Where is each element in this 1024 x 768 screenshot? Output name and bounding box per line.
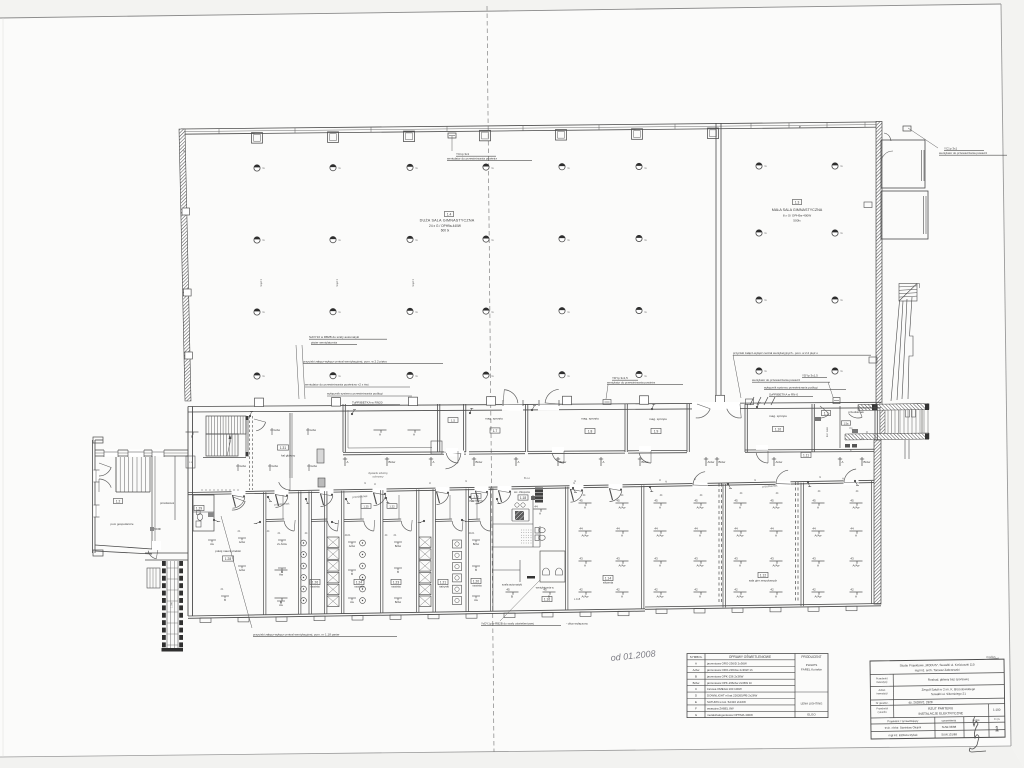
- svg-text:G: G: [568, 310, 570, 314]
- svg-text:A/Aw: A/Aw: [737, 533, 745, 537]
- svg-text:rząd 1: rząd 1: [411, 279, 415, 287]
- svg-text:szafa automatyki: szafa automatyki: [502, 583, 523, 587]
- svg-text:42: 42: [694, 588, 698, 592]
- svg-text:przyciski załącz-wyłącz centra: przyciski załącz-wyłącz central wentylac…: [253, 633, 340, 637]
- svg-text:B/Aw: B/Aw: [560, 460, 568, 464]
- svg-text:1.9: 1.9: [654, 429, 659, 433]
- svg-text:45: 45: [770, 499, 774, 503]
- svg-text:G: G: [263, 374, 265, 378]
- svg-text:A/Aw: A/Aw: [697, 505, 705, 509]
- svg-text:B/Aw: B/Aw: [864, 460, 872, 464]
- svg-text:pom gospodarcze: pom gospodarcze: [111, 522, 134, 526]
- svg-text:∨: ∨: [659, 478, 661, 482]
- svg-text:TuPRIBETKA w RN20: TuPRIBETKA w RN20: [352, 401, 383, 405]
- svg-text:B: B: [351, 572, 353, 576]
- svg-text:A/Aw: A/Aw: [773, 505, 781, 509]
- svg-text:1.29: 1.29: [196, 506, 202, 510]
- svg-text:A/Aw: A/Aw: [737, 594, 745, 598]
- svg-text:G: G: [645, 166, 647, 170]
- svg-text:SUW-33/88: SUW-33/88: [942, 725, 957, 729]
- svg-text:42: 42: [654, 588, 658, 592]
- svg-text:2x A/Aw: 2x A/Aw: [277, 542, 287, 546]
- svg-text:PHILIPS: PHILIPS: [806, 663, 818, 667]
- svg-text:wc. chłopców: wc. chłopców: [514, 490, 530, 494]
- svg-text:jarzeniowa ORO-236/Aw 2x36W: jarzeniowa ORO-236/Aw 2x36W 1h: [706, 668, 753, 672]
- svg-text:A/Aw: A/Aw: [815, 594, 823, 598]
- svg-text:1.2: 1.2: [116, 499, 121, 503]
- svg-text:G: G: [645, 310, 647, 314]
- svg-text:RZUT PARTERU: RZUT PARTERU: [928, 706, 954, 710]
- svg-text:jarzeniowa ORO-236/D 2x36W: jarzeniowa ORO-236/D 2x36W: [706, 661, 747, 665]
- svg-text:1.1: 1.1: [824, 411, 829, 415]
- svg-text:wentylator do przewietrzania p: wentylator do przewietrzania powietrz: [752, 378, 801, 382]
- svg-text:G: G: [645, 238, 647, 242]
- svg-text:siłownia: siłownia: [603, 581, 614, 585]
- svg-text:LENA LIGHTING: LENA LIGHTING: [801, 702, 824, 706]
- svg-text:mag. sprzętu: mag. sprzętu: [649, 417, 667, 421]
- svg-text:wentylator do przewietrzania p: wentylator do przewietrzania powietrz: [607, 381, 656, 385]
- svg-text:45: 45: [734, 499, 738, 503]
- svg-text:A/Aw: A/Aw: [853, 563, 861, 567]
- svg-text:- ulicę wyłączony: - ulicę wyłączony: [566, 622, 588, 626]
- svg-text:G: G: [841, 164, 843, 168]
- svg-text:rząd 1: rząd 1: [335, 279, 339, 287]
- svg-text:mag. sprzętu: mag. sprzętu: [769, 414, 787, 418]
- svg-text:44: 44: [654, 527, 658, 531]
- svg-text:hal główny: hal główny: [281, 454, 296, 458]
- svg-text:1: 1: [995, 724, 999, 733]
- svg-text:A: A: [775, 533, 777, 537]
- svg-text:1.11: 1.11: [803, 453, 809, 457]
- svg-text:44: 44: [579, 527, 583, 531]
- svg-text:45: 45: [850, 499, 854, 503]
- svg-text:C: C: [695, 687, 697, 691]
- svg-text:43: 43: [734, 557, 738, 561]
- svg-text:44: 44: [534, 505, 538, 509]
- svg-text:SvDY10 w RB2B do szafy automat: SvDY10 w RB2B do szafy automatyki: [309, 335, 359, 339]
- svg-text:B: B: [191, 434, 193, 438]
- svg-text:A: A: [433, 460, 435, 464]
- svg-text:A/Aw: A/Aw: [582, 594, 590, 598]
- svg-text:43: 43: [654, 557, 658, 561]
- svg-text:Aw: Aw: [474, 598, 478, 602]
- svg-text:F: F: [695, 707, 697, 711]
- svg-text:A/Aw: A/Aw: [693, 668, 701, 672]
- svg-text:45: 45: [616, 499, 620, 503]
- svg-text:A: A: [817, 563, 819, 567]
- svg-text:Nr geodez.: Nr geodez.: [876, 701, 889, 705]
- svg-text:43: 43: [812, 557, 816, 561]
- svg-text:przyciski załącz-wyłącz centra: przyciski załącz-wyłącz central wentylac…: [733, 351, 818, 355]
- svg-text:44: 44: [812, 527, 816, 531]
- svg-text:1.5: 1.5: [451, 418, 455, 422]
- svg-text:szatnia: szatnia: [391, 585, 401, 589]
- svg-text:G: G: [645, 374, 647, 378]
- svg-text:1.18: 1.18: [520, 496, 526, 500]
- svg-text:A: A: [379, 432, 381, 436]
- svg-text:SUW.131/88: SUW.131/88: [941, 732, 957, 736]
- svg-text:A: A: [699, 533, 701, 537]
- svg-text:pokój nauczycielski: pokój nauczycielski: [215, 549, 241, 553]
- svg-text:1.8: 1.8: [588, 429, 593, 433]
- svg-text:Projektant / Sprawdzający: Projektant / Sprawdzający: [887, 719, 919, 723]
- svg-text:500lx: 500lx: [793, 219, 801, 223]
- svg-text:45: 45: [812, 499, 816, 503]
- svg-text:uprawnienia: uprawnienia: [942, 718, 957, 722]
- svg-text:45: 45: [543, 588, 547, 592]
- svg-text:45: 45: [694, 499, 698, 503]
- svg-text:44: 44: [616, 527, 620, 531]
- svg-text:A: A: [775, 594, 777, 598]
- svg-text:A/Aw: A/Aw: [582, 533, 590, 537]
- svg-text:44: 44: [770, 527, 774, 531]
- svg-text:1 5%: 1 5%: [171, 601, 174, 607]
- svg-text:600 lx: 600 lx: [441, 229, 450, 233]
- svg-text:43: 43: [694, 557, 698, 561]
- svg-text:G: G: [416, 374, 418, 378]
- svg-text:A: A: [659, 505, 661, 509]
- svg-text:G: G: [765, 231, 767, 235]
- svg-text:8 x G/ OPH9a-400W: 8 x G/ OPH9a-400W: [783, 214, 811, 218]
- svg-text:G: G: [492, 238, 494, 242]
- svg-text:B/Aw: B/Aw: [693, 681, 701, 685]
- svg-text:G: G: [841, 231, 843, 235]
- svg-text:A/Aw: A/Aw: [239, 540, 245, 544]
- svg-text:A: A: [621, 594, 623, 598]
- svg-text:A/Aw: A/Aw: [239, 568, 245, 572]
- svg-text:ochronny: ochronny: [372, 475, 384, 479]
- svg-text:45: 45: [506, 588, 510, 592]
- svg-text:A: A: [413, 432, 415, 436]
- svg-text:A/Aw: A/Aw: [776, 460, 784, 464]
- svg-text:jarzeniowa OPK-236 2x36W: jarzeniowa OPK-236 2x36W: [706, 674, 744, 678]
- svg-text:43: 43: [579, 557, 583, 561]
- svg-text:YDYp 3x1,5: YDYp 3x1,5: [612, 376, 628, 380]
- svg-text:∨: ∨: [573, 481, 575, 485]
- svg-text:Suwałki ul. Sikorskiego 21: Suwałki ul. Sikorskiego 21: [931, 692, 966, 696]
- svg-text:D: D: [695, 694, 697, 698]
- svg-text:45: 45: [654, 499, 658, 503]
- svg-text:YDYp 3x1,5: YDYp 3x1,5: [802, 374, 818, 378]
- svg-text:G: G: [339, 238, 341, 242]
- svg-text:B/Aw: B/Aw: [719, 460, 727, 464]
- svg-text:A/Aw: A/Aw: [310, 428, 316, 432]
- svg-text:∨: ∨: [819, 475, 821, 479]
- svg-text:A/Aw: A/Aw: [657, 594, 665, 598]
- svg-text:G: G: [841, 298, 843, 302]
- svg-text:B: B: [695, 674, 697, 678]
- svg-text:metalohalogenkowa OPTIMA 400W: metalohalogenkowa OPTIMA 400W: [707, 713, 753, 717]
- svg-text:A: A: [347, 460, 349, 464]
- svg-text:44: 44: [734, 527, 738, 531]
- svg-text:G: G: [841, 369, 843, 373]
- svg-text:YvDY1p w RB2B do szafy oświetl: YvDY1p w RB2B do szafy oświetleniowej: [481, 622, 534, 626]
- svg-text:wentylator do przewietrzania p: wentylator do przewietrzania powietrz: [939, 151, 988, 155]
- svg-text:YC1p 3x1: YC1p 3x1: [456, 152, 470, 156]
- svg-text:B/Aw: B/Aw: [389, 460, 397, 464]
- svg-text:1.7: 1.7: [493, 429, 498, 433]
- svg-text:42: 42: [616, 588, 620, 592]
- svg-text:wentylator do przewietrzania p: wentylator do przewietrzania powietrza +…: [305, 383, 369, 387]
- svg-text:jarzeniowa OPK-236/Aw 2x36W: jarzeniowa OPK-236/Aw 2x36W 1h: [706, 681, 752, 685]
- svg-text:inwestycji: inwestycji: [876, 680, 888, 684]
- svg-text:mag. sprzętu: mag. sprzętu: [581, 417, 599, 421]
- svg-text:∨: ∨: [465, 479, 467, 483]
- svg-text:inwestycji: inwestycji: [876, 691, 888, 695]
- svg-text:żarowa OMEGA 100 100W: żarowa OMEGA 100 100W: [707, 687, 742, 691]
- svg-text:OPRAWY OŚWIETLENIOWE: OPRAWY OŚWIETLENIOWE: [729, 654, 771, 659]
- svg-text:dywanik szkolny: dywanik szkolny: [368, 471, 388, 475]
- svg-text:szatnia: szatnia: [354, 585, 364, 589]
- svg-text:G: G: [263, 238, 265, 242]
- svg-text:DOWNLIGHT el.kat 226265/PB 2x: DOWNLIGHT el.kat 226265/PB 2x26W: [707, 694, 758, 698]
- svg-text:G: G: [416, 166, 418, 170]
- svg-text:mgl inż. Elżbieta Rybak: mgl inż. Elżbieta Rybak: [888, 733, 918, 737]
- svg-text:1.31: 1.31: [280, 446, 286, 450]
- svg-text:1.25: 1.25: [363, 504, 369, 508]
- svg-text:1.28: 1.28: [225, 557, 231, 561]
- svg-text:∨: ∨: [665, 480, 667, 484]
- svg-text:Aw: Aw: [279, 603, 283, 607]
- svg-text:A/Aw: A/Aw: [311, 464, 317, 468]
- svg-text:42: 42: [850, 588, 854, 592]
- svg-text:A: A: [855, 594, 857, 598]
- svg-text:A/Aw: A/Aw: [708, 460, 716, 464]
- svg-text:szatnia: szatnia: [472, 584, 482, 588]
- svg-text:B/Aw: B/Aw: [395, 544, 401, 548]
- svg-text:sala gier zespołowych: sala gier zespołowych: [749, 579, 778, 583]
- svg-text:∨: ∨: [364, 481, 366, 485]
- svg-text:A: A: [817, 505, 819, 509]
- svg-text:1:100: 1:100: [993, 708, 1001, 712]
- svg-text:43: 43: [850, 557, 854, 561]
- svg-text:A: A: [842, 460, 844, 464]
- svg-text:42: 42: [579, 588, 583, 592]
- svg-text:G: G: [492, 374, 494, 378]
- svg-text:42: 42: [734, 588, 738, 592]
- svg-text:A: A: [695, 661, 697, 665]
- svg-text:45: 45: [579, 499, 583, 503]
- svg-text:B: B: [397, 570, 399, 574]
- svg-text:rząd 1: rząd 1: [259, 279, 263, 287]
- svg-text:przedsionek: przedsionek: [848, 410, 864, 414]
- svg-text:Rozbud. główny baz sportowej: Rozbud. główny baz sportowej: [928, 677, 969, 682]
- svg-text:42: 42: [770, 588, 774, 592]
- svg-text:dz. 26280/2, 2828: dz. 26280/2, 2828: [909, 700, 933, 704]
- svg-text:G: G: [339, 310, 341, 314]
- svg-text:A/Aw: A/Aw: [272, 464, 278, 468]
- svg-text:wyłącznik systemu przewietrzan: wyłącznik systemu przewietrzania podłogi: [327, 392, 383, 396]
- svg-text:A: A: [584, 505, 586, 509]
- svg-text:A: A: [659, 563, 661, 567]
- svg-text:pięter wentylatornia: pięter wentylatornia: [311, 341, 337, 345]
- svg-text:A/Aw: A/Aw: [619, 505, 627, 509]
- svg-text:42: 42: [812, 588, 816, 592]
- svg-text:A/Aw: A/Aw: [349, 544, 355, 548]
- svg-text:43: 43: [616, 557, 620, 561]
- svg-text:YC1p 3x1: YC1p 3x1: [944, 147, 958, 151]
- svg-text:przyciski załącz-wyłącz centra: przyciski załącz-wyłącz central wentylac…: [303, 360, 387, 364]
- svg-text:B o.o: B o.o: [524, 477, 530, 480]
- svg-text:G: G: [492, 166, 494, 170]
- svg-text:B: B: [548, 594, 550, 598]
- svg-text:44: 44: [694, 527, 698, 531]
- svg-text:A/Aw: A/Aw: [815, 533, 823, 537]
- svg-text:1.12: 1.12: [760, 573, 766, 577]
- svg-text:B: B: [475, 568, 477, 572]
- svg-text:ELGO: ELGO: [807, 713, 816, 717]
- svg-text:SATURN w kol. 5A316 2x16W: SATURN w kol. 5A316 2x16W: [707, 700, 746, 704]
- svg-text:PRODUCENT: PRODUCENT: [801, 655, 821, 659]
- svg-text:G: G: [339, 374, 341, 378]
- svg-text:A: A: [855, 533, 857, 537]
- svg-text:PO3Φ: PO3Φ: [153, 527, 162, 531]
- svg-text:kor. wew: kor. wew: [825, 427, 829, 437]
- svg-text:1.4: 1.4: [447, 212, 452, 216]
- svg-text:43: 43: [770, 557, 774, 561]
- svg-text:∨: ∨: [754, 478, 756, 482]
- svg-text:Adres: Adres: [878, 688, 886, 692]
- svg-text:C: C: [866, 430, 868, 434]
- svg-text:∨: ∨: [374, 482, 376, 486]
- svg-text:B/Aw: B/Aw: [476, 460, 484, 464]
- svg-text:G: G: [765, 369, 767, 373]
- svg-text:Aw: Aw: [350, 600, 354, 604]
- svg-text:wyłącznik systemu przewietrzan: wyłącznik systemu przewietrzania podłogi: [764, 386, 818, 390]
- svg-text:A/Aw: A/Aw: [274, 428, 280, 432]
- svg-text:Aw: Aw: [210, 542, 214, 546]
- svg-text:G: G: [416, 310, 418, 314]
- svg-text:A: A: [518, 460, 520, 464]
- svg-text:A/Aw: A/Aw: [853, 505, 861, 509]
- svg-text:INSTALACJE ELEKTRYCZNE: INSTALACJE ELEKTRYCZNE: [918, 711, 963, 716]
- svg-text:×: ×: [183, 149, 185, 153]
- svg-text:A: A: [539, 511, 541, 515]
- svg-text:DUŻA SALA GIMNASTYCZNA: DUŻA SALA GIMNASTYCZNA: [420, 218, 475, 223]
- svg-text:rysunku: rysunku: [878, 710, 888, 714]
- svg-text:C: C: [861, 437, 863, 441]
- svg-text:G: G: [492, 310, 494, 314]
- svg-text:natryski: natryski: [439, 585, 449, 589]
- svg-text:G: G: [416, 238, 418, 242]
- svg-text:B/Aw: B/Aw: [642, 460, 650, 464]
- svg-text:G: G: [765, 298, 767, 302]
- svg-text:G: G: [263, 166, 265, 170]
- svg-text:A/Aw: A/Aw: [619, 563, 627, 567]
- svg-text:1.22: 1.22: [389, 504, 395, 508]
- svg-text:∨: ∨: [429, 481, 431, 485]
- svg-text:szatnia: szatnia: [310, 585, 320, 589]
- svg-text:MAŁA SALA GIMNASTYCZNA: MAŁA SALA GIMNASTYCZNA: [772, 208, 823, 212]
- svg-text:nr rys: nr rys: [994, 718, 1001, 721]
- svg-text:przedsionek: przedsionek: [160, 501, 175, 505]
- svg-text:tech. elektr. Stanisław Ołejni: tech. elektr. Stanisław Ołejnik: [885, 725, 922, 730]
- svg-text:SYMBOL: SYMBOL: [690, 655, 703, 659]
- svg-text:1.3: 1.3: [795, 200, 800, 204]
- svg-text:B/Aw: B/Aw: [395, 600, 401, 604]
- svg-text:G: G: [765, 164, 767, 168]
- svg-text:G: G: [339, 166, 341, 170]
- svg-text:B: B: [281, 570, 283, 574]
- svg-text:∨: ∨: [842, 476, 844, 480]
- svg-text:B: B: [511, 594, 513, 598]
- svg-text:A/Aw: A/Aw: [657, 533, 665, 537]
- svg-text:A/Aw: A/Aw: [697, 563, 705, 567]
- svg-text:A: A: [603, 460, 605, 464]
- svg-text:wentylator do przewietrzania p: wentylator do przewietrzania powietrz: [447, 157, 498, 161]
- svg-text:24 x G / OPH9a-440W: 24 x G / OPH9a-440W: [429, 224, 461, 228]
- svg-text:A: A: [739, 563, 741, 567]
- svg-text:mgl inż. arch. Tomasz Zakrzews: mgl inż. arch. Tomasz Zakrzewski: [915, 668, 960, 673]
- svg-text:1.10: 1.10: [775, 427, 781, 431]
- svg-text:B: B: [224, 598, 226, 602]
- svg-text:awaryjna ZABEL 8W: awaryjna ZABEL 8W: [707, 707, 734, 711]
- svg-text:G: G: [568, 238, 570, 242]
- svg-text:44: 44: [850, 527, 854, 531]
- svg-text:B/Aw: B/Aw: [473, 542, 479, 546]
- svg-text:G: G: [568, 166, 570, 170]
- svg-text:L.118: L.118: [574, 597, 581, 601]
- svg-text:A/Aw: A/Aw: [240, 464, 246, 468]
- svg-text:1.5a: 1.5a: [844, 422, 849, 425]
- svg-text:mag. sprzętu: mag. sprzętu: [485, 417, 503, 421]
- svg-text:E: E: [695, 700, 697, 704]
- svg-text:A: A: [621, 533, 623, 537]
- svg-text:A: A: [584, 563, 586, 567]
- svg-text:A/Aw: A/Aw: [773, 563, 781, 567]
- svg-text:G: G: [568, 374, 570, 378]
- svg-text:A: A: [739, 505, 741, 509]
- svg-text:A: A: [699, 594, 701, 598]
- svg-text:G: G: [263, 310, 265, 314]
- svg-text:FAREL Końskie: FAREL Końskie: [801, 668, 822, 672]
- svg-text:SvPRIBETKA w RN-0: SvPRIBETKA w RN-0: [769, 393, 798, 397]
